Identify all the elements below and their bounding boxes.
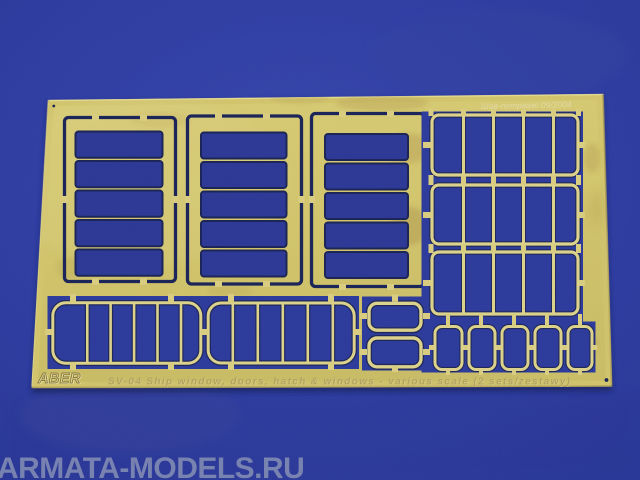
svg-text:ARMATA-MODELS.RU: ARMATA-MODELS.RU: [0, 452, 305, 480]
